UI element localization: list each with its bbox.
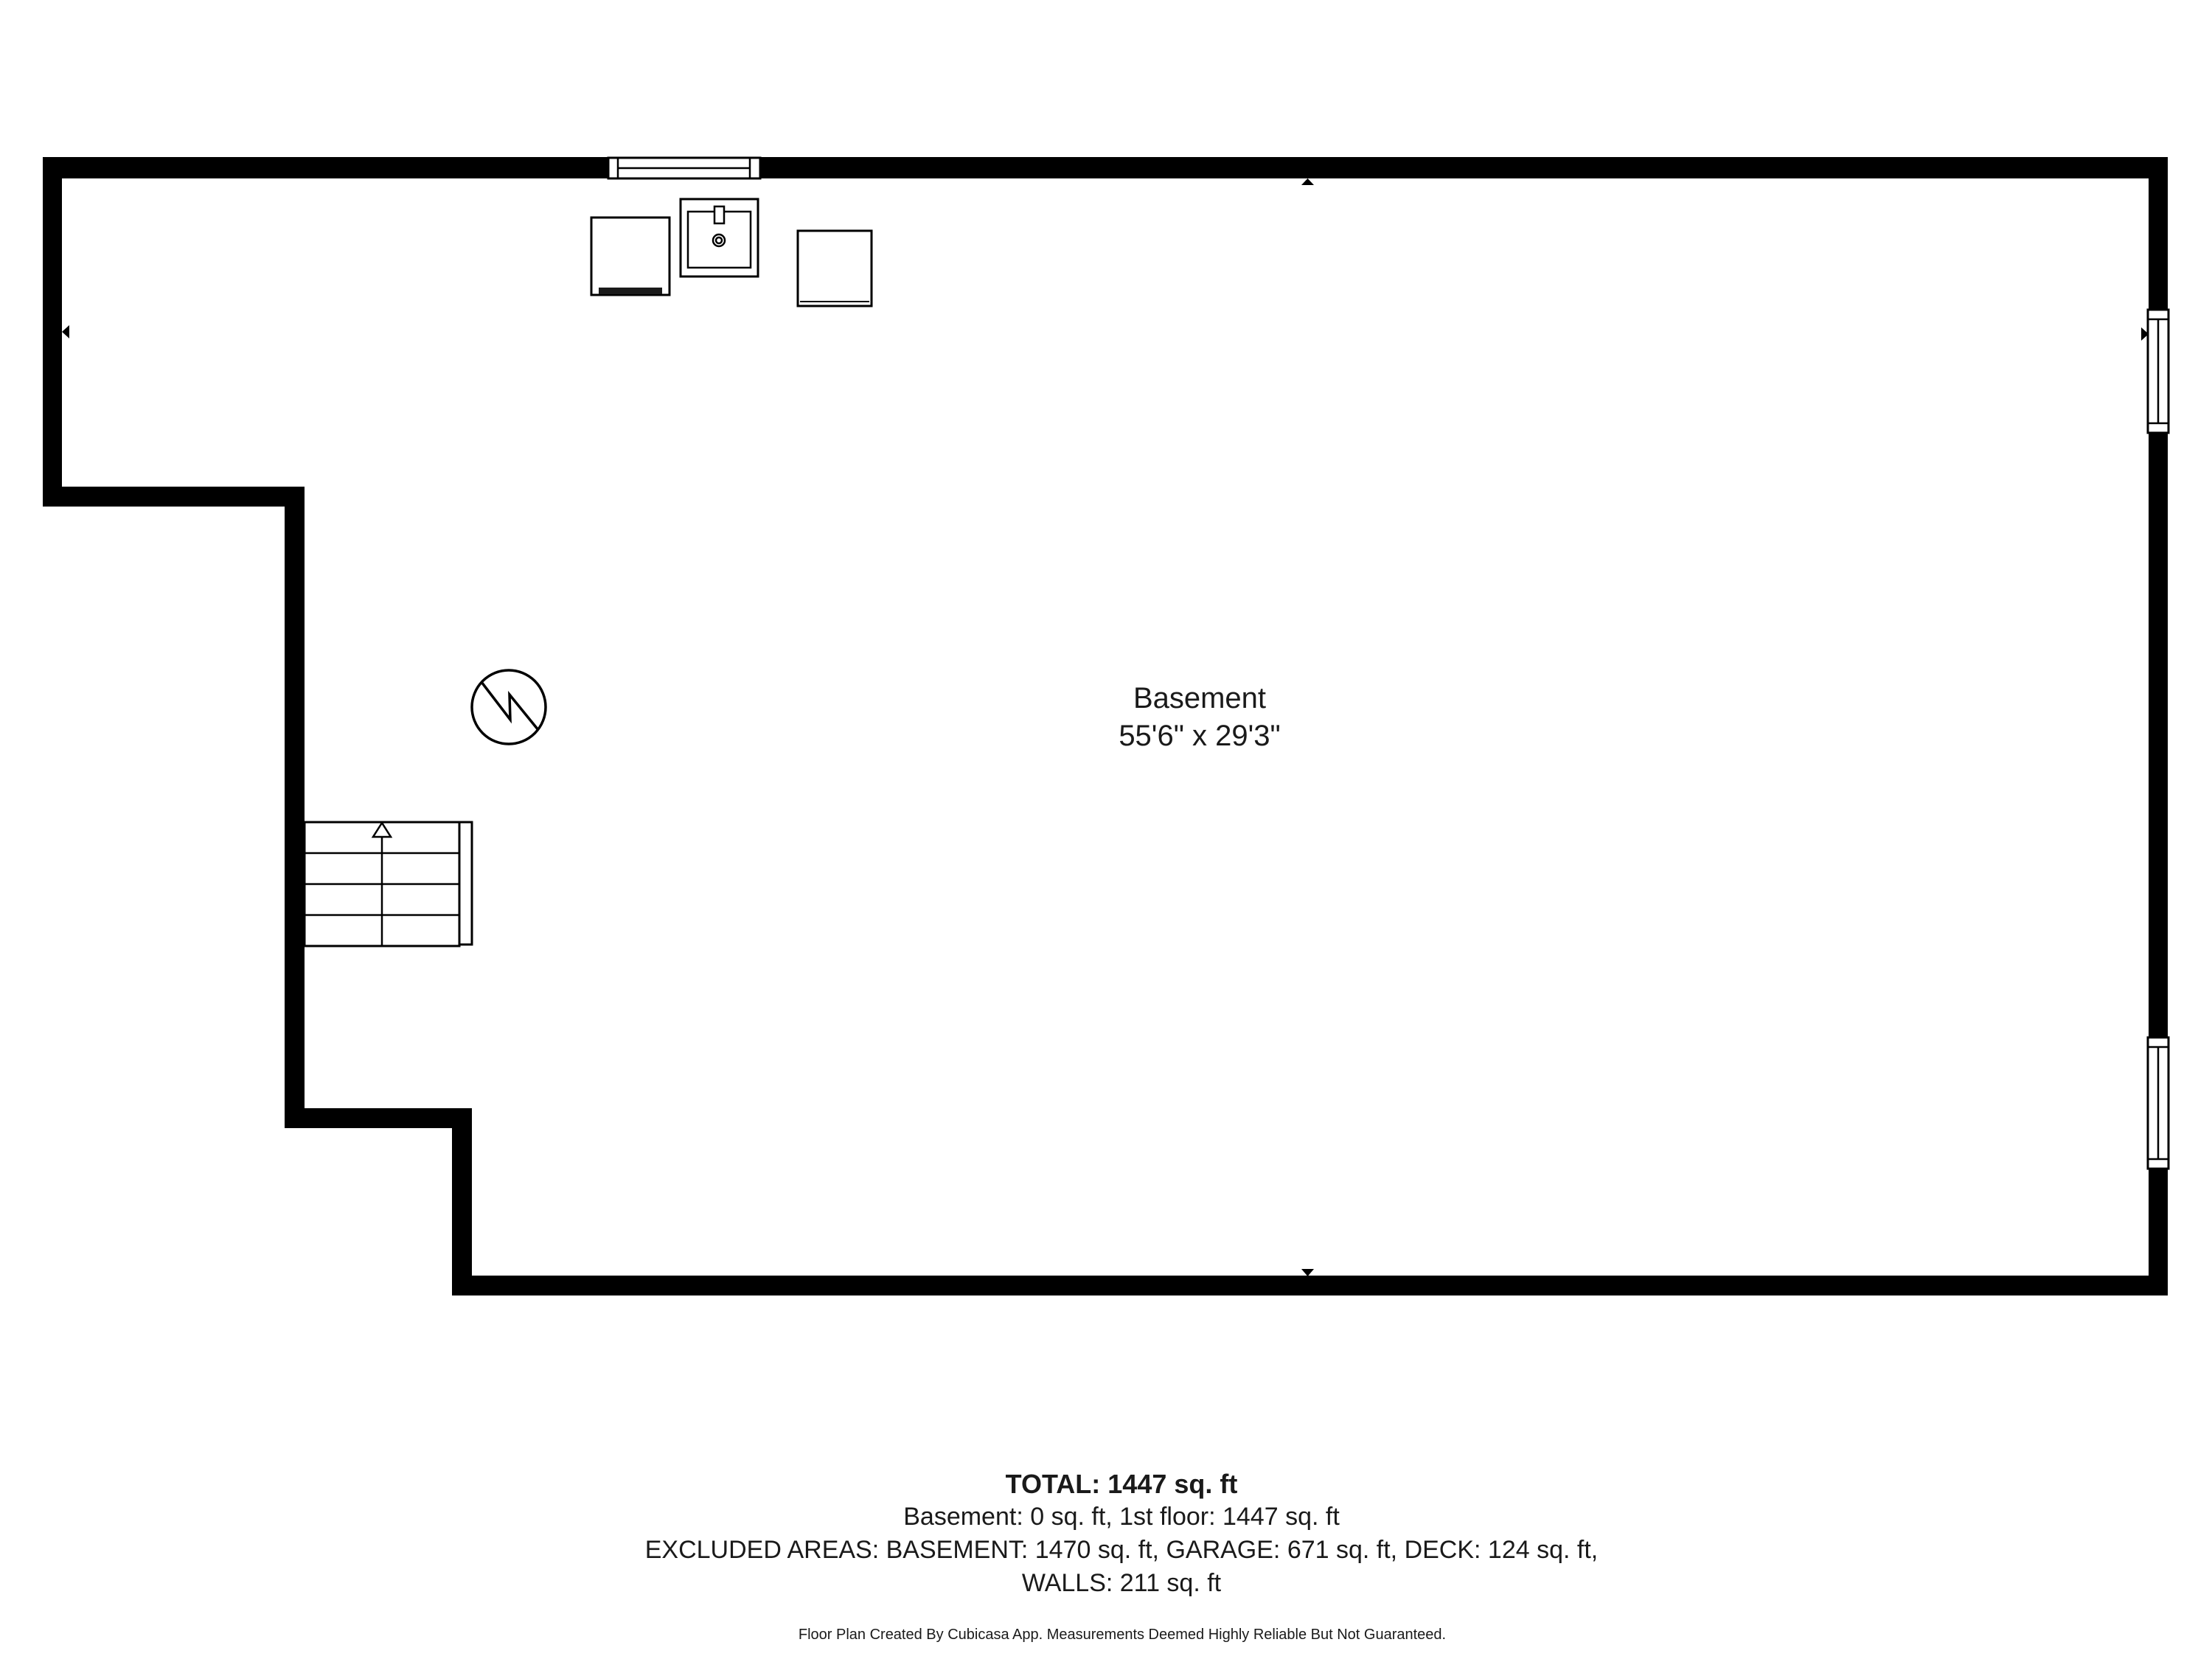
disclaimer-text: Floor Plan Created By Cubicasa App. Meas… [16,1627,2212,1644]
window-icon [608,158,760,178]
sink-faucet [714,206,724,223]
alignment-arrow-icon [1301,178,1314,185]
room-name: Basement [978,680,1421,717]
excluded-walls-text: WALLS: 211 sq. ft [15,1567,2212,1600]
alignment-arrow-icon [1301,1269,1314,1276]
dryer-icon [798,231,872,306]
floorplan-drawing [0,0,2212,1659]
excluded-areas-text: EXCLUDED AREAS: BASEMENT: 1470 sq. ft, G… [15,1534,2212,1567]
room-label: Basement 55'6" x 29'3" [978,680,1421,755]
floorplan-page: Basement 55'6" x 29'3" TOTAL: 1447 sq. f… [0,0,2212,1659]
dryer-body [798,231,872,306]
stair-stringer [459,822,472,945]
alignment-arrow-icon [62,325,69,338]
washer-icon [591,218,669,295]
room-dimensions: 55'6" x 29'3" [978,717,1421,755]
floor-breakdown-text: Basement: 0 sq. ft, 1st floor: 1447 sq. … [15,1500,2212,1534]
water-heater-icon [472,670,546,744]
laundry-sink-icon [681,199,758,276]
washer-door-seal [599,288,662,294]
area-summary: TOTAL: 1447 sq. ft Basement: 0 sq. ft, 1… [15,1467,2212,1600]
washer-body [591,218,669,295]
total-area-text: TOTAL: 1447 sq. ft [15,1467,2212,1500]
window-icon [2148,310,2168,433]
staircase-icon [305,822,472,946]
window-icon [2148,1037,2168,1169]
